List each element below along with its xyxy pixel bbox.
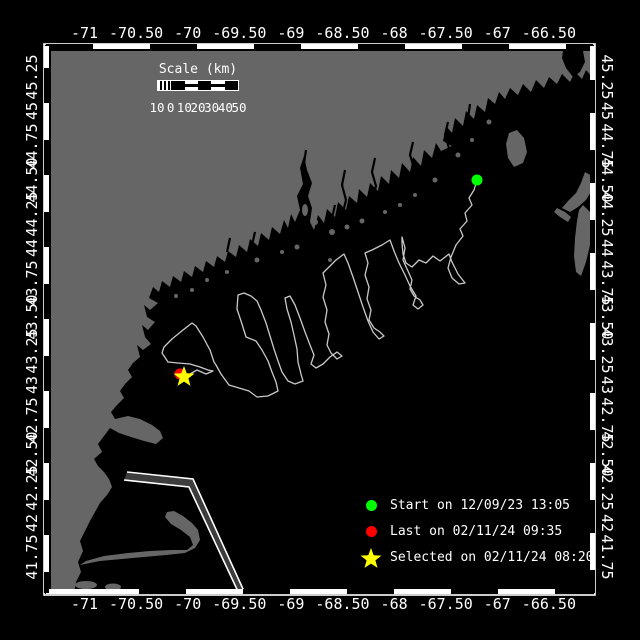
legend-item-label: Last on 02/11/24 09:35	[390, 524, 562, 539]
lat-tick-label: 45	[598, 102, 616, 120]
lon-tick-label: -67	[484, 595, 511, 613]
scale-bar: Scale (km)	[157, 62, 239, 91]
legend-marker-star	[359, 546, 383, 570]
lon-tick-label: -69.50	[212, 24, 266, 42]
scale-segment	[198, 81, 211, 90]
lat-tick-label: 45.25	[598, 54, 616, 99]
lon-tick-label: -70	[174, 595, 201, 613]
legend-item-label: Selected on 02/11/24 08:20	[390, 550, 594, 565]
legend: Start on 12/09/23 13:05Last on 02/11/24 …	[358, 497, 594, 566]
lat-tick-label: 44	[23, 239, 41, 257]
scale-segment	[225, 81, 238, 90]
scale-segment	[158, 81, 171, 90]
drifter-track-plot: -71-70.50-70-69.50-69-68.50-68-67.50-67-…	[0, 0, 640, 640]
scale-tick-label: 10	[149, 100, 164, 115]
lat-tick-label: 43.25	[23, 329, 41, 374]
lon-tick-label: -70.50	[109, 595, 163, 613]
scale-bar-title: Scale (km)	[157, 62, 239, 77]
lat-tick-label: 42	[598, 514, 616, 532]
legend-item-label: Start on 12/09/23 13:05	[390, 498, 570, 513]
lon-tick-label: -66.50	[522, 595, 576, 613]
lat-tick-label: 42.25	[598, 466, 616, 511]
scale-bar-segments	[157, 80, 239, 91]
lat-tick-label: 43.25	[598, 329, 616, 374]
lon-tick-label: -70	[174, 24, 201, 42]
lat-tick-label: 44.25	[598, 192, 616, 237]
lat-tick-label: 41.75	[23, 534, 41, 579]
lon-tick-label: -68.50	[315, 24, 369, 42]
dot-icon	[358, 521, 384, 543]
legend-item: Selected on 02/11/24 08:20	[358, 549, 594, 566]
lon-tick-label: -71	[71, 24, 98, 42]
lat-tick-label: 41.75	[598, 534, 616, 579]
lon-tick-label: -67.50	[419, 24, 473, 42]
lon-tick-label: -68	[381, 24, 408, 42]
lon-tick-label: -66.50	[522, 24, 576, 42]
lon-tick-label: -69	[277, 24, 304, 42]
island	[75, 581, 97, 589]
lon-tick-label: -70.50	[109, 24, 163, 42]
star-icon	[358, 547, 384, 569]
scale-tick-label: 50	[231, 100, 246, 115]
legend-marker-dot	[366, 526, 377, 537]
legend-item: Start on 12/09/23 13:05	[358, 497, 594, 514]
legend-marker-dot	[366, 500, 377, 511]
lat-tick-label: 43	[23, 376, 41, 394]
scale-segment	[171, 81, 184, 90]
start-marker	[472, 175, 483, 186]
scale-segment	[211, 81, 224, 90]
scale-tick-label: 0	[167, 100, 175, 115]
lon-tick-label: -67.50	[419, 595, 473, 613]
scale-segment	[185, 81, 198, 90]
lat-tick-label: 45.25	[23, 54, 41, 99]
lon-tick-label: -68	[381, 595, 408, 613]
scale-bar-labels: 1001020304050	[157, 100, 257, 116]
lon-tick-label: -69.50	[212, 595, 266, 613]
lon-tick-label: -68.50	[315, 595, 369, 613]
dot-icon	[358, 495, 384, 517]
lat-tick-label: 44.25	[23, 192, 41, 237]
lon-tick-label: -69	[277, 595, 304, 613]
legend-item: Last on 02/11/24 09:35	[358, 523, 594, 540]
lat-tick-label: 44	[598, 239, 616, 257]
lat-tick-label: 42.25	[23, 466, 41, 511]
lon-tick-label: -67	[484, 24, 511, 42]
lat-tick-label: 42	[23, 514, 41, 532]
lon-tick-label: -71	[71, 595, 98, 613]
lat-tick-label: 45	[23, 102, 41, 120]
lat-tick-label: 43	[598, 376, 616, 394]
